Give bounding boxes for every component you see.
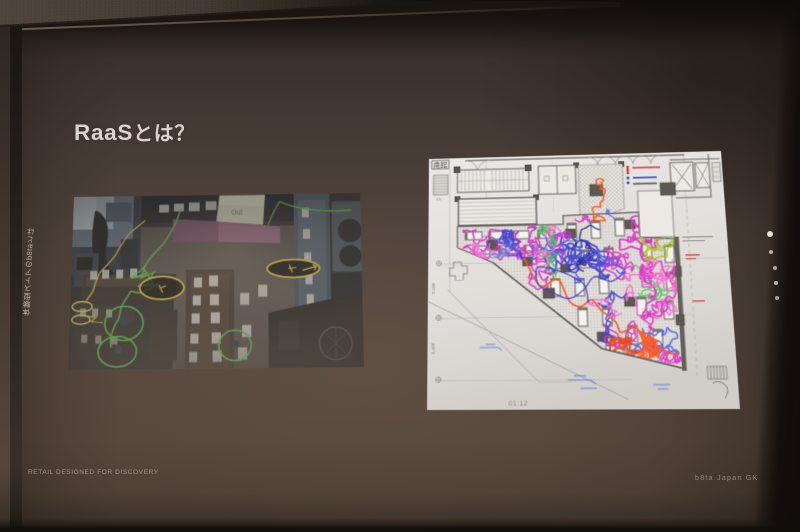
svg-text:01:12: 01:12 <box>509 401 528 408</box>
